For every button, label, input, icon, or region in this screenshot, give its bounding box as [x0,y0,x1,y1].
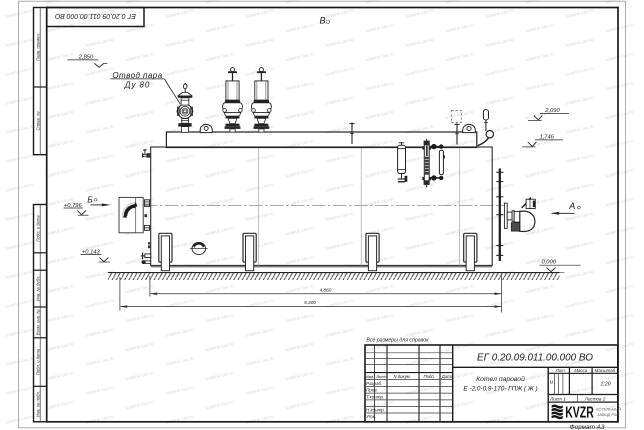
svg-text:Листов 2: Листов 2 [584,396,606,401]
svg-text:Пров.: Пров. [366,388,378,393]
svg-text:N докум.: N докум. [394,374,411,379]
svg-text:Утв.: Утв. [366,414,376,419]
svg-text:ЕГ 0.20.09.011.00.000 ВО: ЕГ 0.20.09.011.00.000 ВО [477,352,593,363]
svg-text:Подп. и дата: Подп. и дата [35,215,40,242]
svg-text:Формат А3: Формат А3 [570,424,605,430]
svg-text:Б: Б [87,195,93,205]
svg-text:Справ. №: Справ. № [35,111,40,130]
svg-text:Масса: Масса [574,368,588,373]
svg-text:4,860: 4,860 [320,287,332,292]
svg-text:0,000: 0,000 [541,259,556,265]
svg-text:ЕГ 0.20.09.011.00.000 ВО: ЕГ 0.20.09.011.00.000 ВО [54,12,135,19]
svg-text:КОТЕЛЬНЫЙ: КОТЕЛЬНЫЙ [596,406,621,411]
svg-text:1,746: 1,746 [539,134,554,140]
svg-text:Перв. примен.: Перв. примен. [35,33,40,61]
svg-text:В: В [320,15,326,25]
svg-text:Лист: Лист [375,374,387,379]
svg-text:Отвод пара: Отвод пара [112,71,162,80]
svg-text:Лит.: Лит. [555,368,566,373]
svg-text:Изм.: Изм. [366,374,375,379]
svg-text:1:20: 1:20 [600,382,610,388]
svg-text:Котел паровой: Котел паровой [476,375,525,383]
svg-text:Разраб.: Разраб. [366,381,382,386]
svg-text:Все размеры для справок: Все размеры для справок [366,337,429,343]
svg-text:Дата: Дата [441,374,454,379]
svg-text:Инв. № дубл.: Инв. № дубл. [35,276,40,302]
svg-text:2,090: 2,090 [544,108,560,114]
svg-text:5,300: 5,300 [304,300,316,305]
svg-text:Т.контр.: Т.контр. [366,394,384,399]
svg-text:Лист 1: Лист 1 [549,396,566,401]
svg-text:Подп. и дата: Подп. и дата [35,348,40,375]
svg-text:KVZR: KVZR [565,404,594,421]
svg-text:Ду 80: Ду 80 [124,81,150,90]
svg-text:Подп.: Подп. [424,374,435,379]
svg-text:ЗАВОД РЭП: ЗАВОД РЭП [597,412,620,417]
svg-text:Инв. № подл.: Инв. № подл. [35,391,40,417]
svg-text:Масштаб: Масштаб [595,368,616,373]
svg-text:Е -2,0-0,9-170- ГПЖ ( Ж ): Е -2,0-0,9-170- ГПЖ ( Ж ) [463,385,537,392]
svg-text:А: А [568,201,575,211]
svg-text:Взам. инв. №: Взам. инв. № [35,309,40,335]
svg-text:Н.контр.: Н.контр. [366,408,385,413]
